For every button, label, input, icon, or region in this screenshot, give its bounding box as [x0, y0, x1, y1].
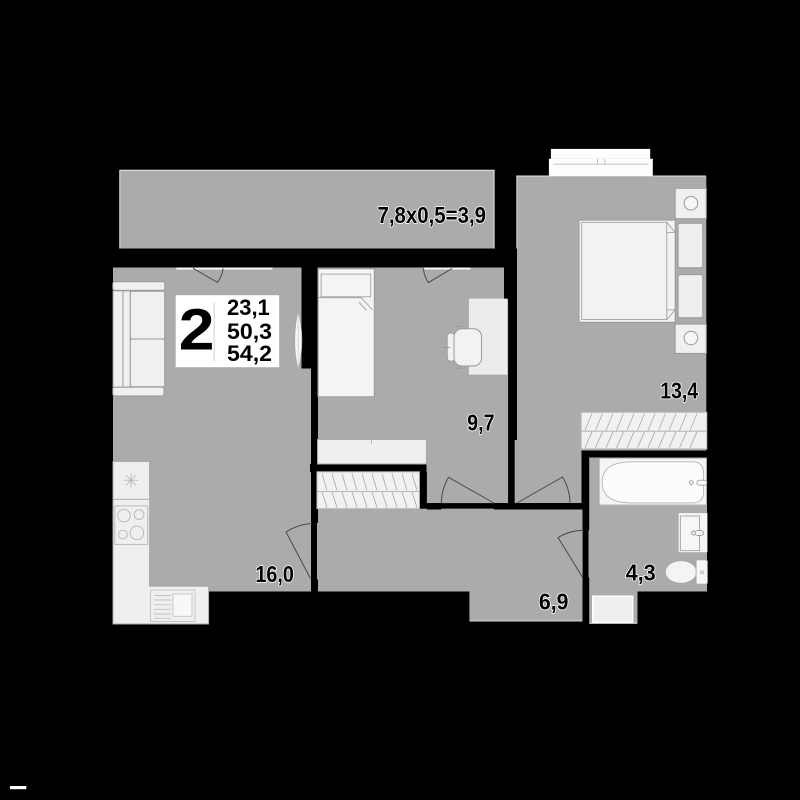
svg-text:9,7: 9,7	[467, 409, 495, 435]
svg-text:23,1: 23,1	[227, 295, 270, 320]
svg-text:13,4: 13,4	[660, 377, 698, 403]
svg-text:4,3: 4,3	[626, 560, 656, 586]
svg-text:16,0: 16,0	[255, 561, 294, 587]
svg-text:7,8x0,5=3,9: 7,8x0,5=3,9	[378, 202, 487, 228]
svg-text:54,2: 54,2	[227, 341, 272, 366]
svg-text:2: 2	[179, 297, 215, 361]
svg-text:6,9: 6,9	[539, 588, 569, 614]
